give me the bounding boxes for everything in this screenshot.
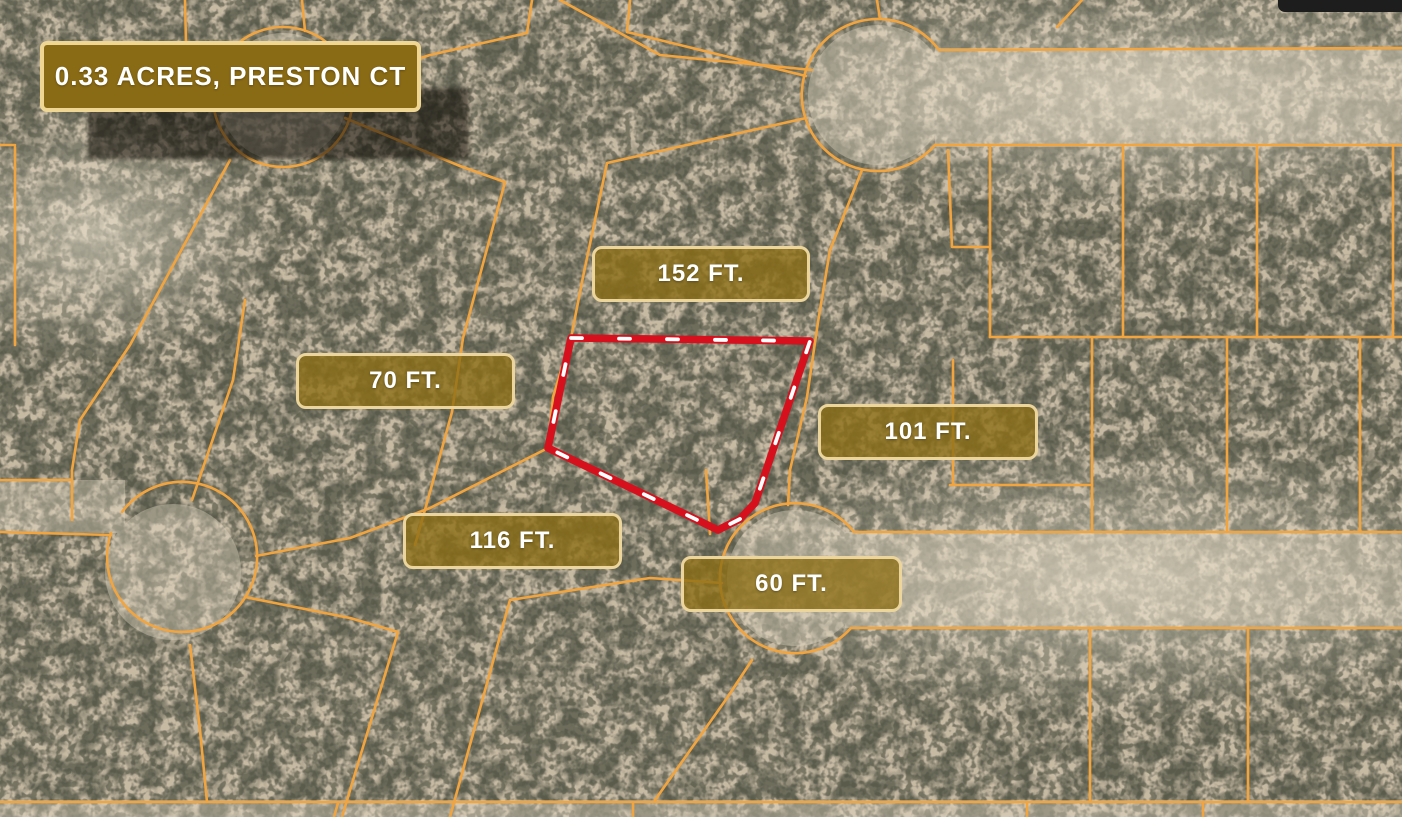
dark-overlay-bar — [1278, 0, 1402, 12]
acreage-title-text: 0.33 ACRES, PRESTON CT — [55, 61, 406, 92]
dimension-text-southwest: 116 FT. — [470, 527, 556, 555]
dimension-text-east: 101 FT. — [884, 418, 971, 446]
dimension-text-south: 60 FT. — [755, 570, 828, 598]
acreage-title-badge: 0.33 ACRES, PRESTON CT — [40, 41, 421, 112]
dimension-label-south: 60 FT. — [681, 556, 902, 612]
map-canvas: 0.33 ACRES, PRESTON CT 152 FT. 70 FT. 10… — [0, 0, 1402, 817]
dimension-text-west: 70 FT. — [369, 367, 442, 395]
dimension-label-west: 70 FT. — [296, 353, 515, 409]
dimension-text-north: 152 FT. — [657, 260, 744, 288]
dimension-label-east: 101 FT. — [818, 404, 1038, 460]
dimension-label-north: 152 FT. — [592, 246, 810, 302]
dimension-label-southwest: 116 FT. — [403, 513, 622, 569]
